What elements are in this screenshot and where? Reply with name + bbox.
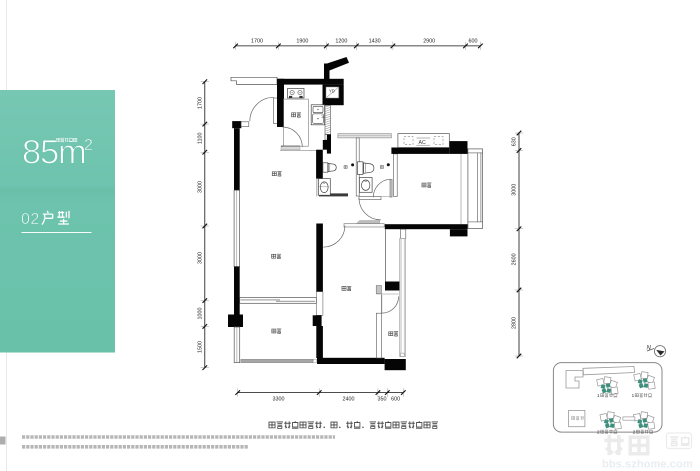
svg-text:2: 2 bbox=[597, 430, 600, 435]
svg-text:630: 630 bbox=[512, 137, 518, 146]
svg-text:2400: 2400 bbox=[343, 397, 355, 403]
svg-text:3000: 3000 bbox=[198, 181, 204, 193]
svg-text:1: 1 bbox=[597, 393, 600, 398]
svg-text:2600: 2600 bbox=[512, 253, 518, 265]
svg-text:600: 600 bbox=[391, 397, 400, 403]
svg-text:3300: 3300 bbox=[273, 397, 285, 403]
svg-text:1700: 1700 bbox=[251, 39, 263, 45]
svg-text:1900: 1900 bbox=[296, 39, 308, 45]
svg-text:85m: 85m bbox=[22, 134, 86, 172]
svg-text:3000: 3000 bbox=[512, 184, 518, 196]
svg-text:1000: 1000 bbox=[198, 308, 204, 320]
svg-text:YD: YD bbox=[329, 89, 335, 94]
svg-text:2800: 2800 bbox=[512, 317, 518, 329]
svg-text:1500: 1500 bbox=[198, 341, 204, 353]
svg-text:1100: 1100 bbox=[198, 133, 204, 145]
svg-text:1200: 1200 bbox=[335, 39, 347, 45]
svg-text:2900: 2900 bbox=[423, 39, 435, 45]
svg-text:02: 02 bbox=[21, 211, 40, 228]
svg-text:2: 2 bbox=[633, 430, 636, 435]
svg-text:1430: 1430 bbox=[369, 39, 381, 45]
svg-text:1: 1 bbox=[632, 393, 635, 398]
svg-text:bbs.szhome.com: bbs.szhome.com bbox=[602, 459, 693, 471]
svg-text:3000: 3000 bbox=[198, 252, 204, 264]
svg-text:1700: 1700 bbox=[198, 97, 204, 109]
svg-text:350: 350 bbox=[378, 397, 387, 403]
svg-text:600: 600 bbox=[469, 39, 478, 45]
svg-text:2: 2 bbox=[84, 137, 93, 154]
